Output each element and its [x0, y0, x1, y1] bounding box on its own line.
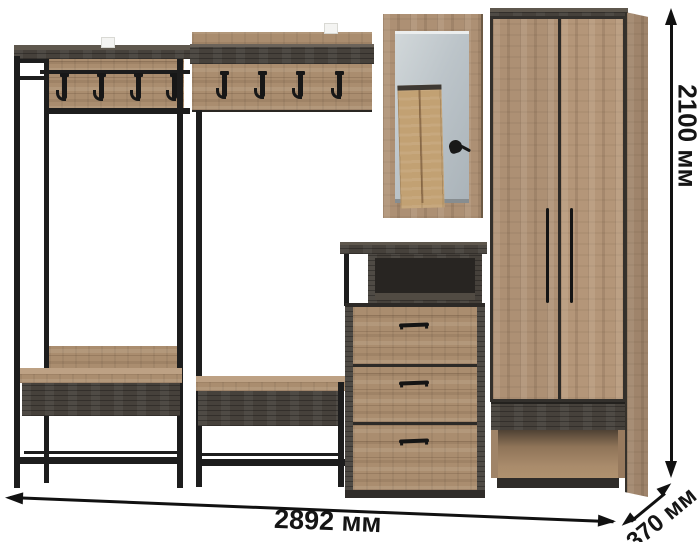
- coat-hook-icon: [136, 75, 141, 99]
- coat-hook-icon: [337, 73, 342, 97]
- left-rack-side-rail: [14, 76, 49, 80]
- dim-height-arrow-up-icon: [665, 8, 677, 25]
- coat-hook-icon: [99, 75, 104, 99]
- left-bench-drawer-front: [22, 383, 180, 416]
- left-rack-top-shelf: [14, 50, 196, 59]
- left-rack-back-panel: [48, 59, 184, 112]
- left-rack-right-post: [177, 59, 183, 488]
- coat-hook-icon: [260, 73, 265, 97]
- dim-height-arrow-down-icon: [665, 461, 677, 478]
- wardrobe-side-panel: [625, 10, 648, 497]
- chest-open-shelf-opening: [375, 258, 475, 295]
- wall-bracket: [101, 37, 115, 48]
- dim-width-label: 2892 мм: [273, 504, 382, 539]
- left-rack-front-left-post: [14, 56, 20, 488]
- middle-bench-seat-edge: [196, 382, 346, 391]
- wardrobe-handle: [546, 208, 549, 303]
- chest-open-shelf-lip: [375, 293, 475, 300]
- left-bench-seat-edge: [20, 374, 182, 383]
- wardrobe-drawer-front: [491, 402, 625, 432]
- wardrobe-open-niche: [491, 430, 625, 478]
- drawer-handle: [399, 380, 429, 385]
- left-rack-side-rail: [14, 59, 49, 63]
- dim-width-arrow-right-icon: [598, 515, 616, 528]
- wall-bracket: [324, 23, 338, 34]
- chest-top-board: [340, 245, 487, 254]
- chest-right-side: [477, 307, 485, 492]
- chest-left-side: [345, 307, 353, 492]
- wardrobe-plinth: [497, 478, 619, 488]
- middle-bench-drawer-front: [198, 391, 344, 426]
- chest-frame-left-post: [344, 254, 349, 306]
- middle-bench-lower-shelf-back-rail: [202, 453, 342, 456]
- drawer-handle: [399, 438, 429, 443]
- dim-width-arrow-left-icon: [5, 492, 23, 505]
- left-rack-bottom-rail: [44, 108, 190, 114]
- chest-drawer: [353, 425, 477, 490]
- middle-bench-right-post: [338, 382, 344, 487]
- left-rack-back-left-post: [44, 59, 49, 483]
- chest-plinth: [345, 490, 485, 498]
- furniture-render: 2100 мм 2892 мм 370 мм: [0, 0, 700, 542]
- middle-bench-lower-shelf-front-rail: [196, 459, 346, 466]
- chest-drawer: [353, 307, 477, 367]
- left-rack-lower-shelf-back-rail: [24, 451, 178, 454]
- middle-bench-left-post: [196, 110, 202, 487]
- dim-height-label: 2100 мм: [672, 84, 700, 188]
- left-rack-lower-shelf-front-rail: [17, 457, 183, 464]
- mirror-glass-highlight: [395, 31, 469, 34]
- coat-hook-icon: [222, 73, 227, 97]
- wardrobe-handle: [570, 208, 573, 303]
- drawer-handle: [399, 322, 429, 327]
- coat-hook-icon: [62, 75, 67, 99]
- wall-panel-shelf: [190, 47, 374, 64]
- coat-hook-icon: [298, 73, 303, 97]
- chest-drawer: [353, 367, 477, 425]
